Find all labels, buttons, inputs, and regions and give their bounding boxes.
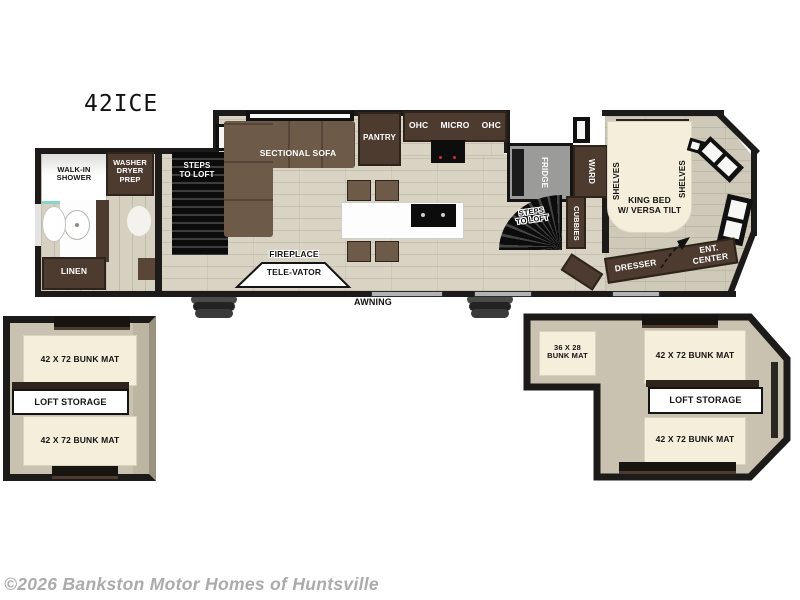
bathroom-step: [138, 258, 155, 280]
window-pane: [577, 121, 585, 139]
loft-right-bunk-small-label: 36 X 28 BUNK MAT: [539, 344, 596, 361]
rear-stairs-label: STEPS TO LOFT: [164, 162, 230, 180]
island-sink: [411, 204, 456, 227]
dresser-label: DRESSER: [614, 258, 657, 274]
burner-dot: [453, 156, 456, 159]
copyright-text: ©2026 Bankston Motor Homes of Huntsville: [4, 574, 379, 595]
wall-segment: [751, 148, 757, 236]
window-pane: [702, 142, 723, 163]
floorplan-title: 42ICE: [84, 91, 158, 117]
loft-right-bottom-opening: [619, 462, 736, 474]
loft-right-bunk-bottom-label: 42 X 72 BUNK MAT: [644, 435, 746, 445]
bathroom-cabinet: [96, 200, 109, 262]
wardrobe-label: WARD: [584, 150, 597, 194]
fridge-label: FRIDGE: [537, 148, 550, 198]
loft-left-bunk-top-label: 42 X 72 BUNK MAT: [23, 355, 137, 365]
loft-left-storage-label: LOFT STORAGE: [12, 397, 129, 407]
bar-stool: [347, 241, 371, 262]
bar-stool: [347, 180, 371, 201]
sink-dot: [441, 213, 445, 217]
loft-right-storage-shadow: [646, 380, 759, 387]
range: [431, 140, 465, 163]
bottom-window: [474, 291, 532, 297]
loft-right-top-opening: [642, 315, 718, 328]
faucet-dot: [75, 223, 79, 227]
sofa-window: [246, 111, 354, 121]
loft-right-storage-label: LOFT STORAGE: [648, 395, 763, 405]
fridge-door-edge: [512, 149, 524, 196]
wall-segment: [35, 291, 161, 297]
cubbies-label: CUBBIES: [570, 200, 582, 246]
window-pane: [723, 220, 742, 239]
loft-left-top-opening: [54, 316, 130, 330]
washer-dryer-prep-label: WASHER DRYER PREP: [107, 159, 153, 184]
bathroom-window: [35, 204, 41, 246]
bathroom-sink: [64, 210, 90, 240]
wall-segment: [155, 148, 162, 297]
bottom-window: [612, 291, 660, 297]
entry-arrow: [653, 228, 699, 274]
window-pane: [728, 200, 747, 220]
awning-label: AWNING: [339, 297, 407, 307]
sectional-sofa-label: SECTIONAL SOFA: [242, 149, 354, 159]
loft-left-bunk-bottom-label: 42 X 72 BUNK MAT: [23, 436, 137, 446]
ohc-right-label: OHC: [482, 121, 501, 131]
bath-rug: [127, 206, 151, 236]
loft-right-window-strip: [771, 362, 778, 438]
sink-dot: [421, 213, 425, 217]
overhead-cabinet-labels: OHC MICRO OHC: [403, 121, 507, 131]
ohc-left-label: OHC: [409, 121, 428, 131]
sofa-chaise: [224, 121, 273, 237]
walk-in-shower-label: WALK-IN SHOWER: [44, 166, 104, 183]
bar-stool: [375, 241, 399, 262]
micro-label: MICRO: [440, 121, 469, 131]
wall-segment: [602, 110, 724, 116]
loft-right-bunk-top-label: 42 X 72 BUNK MAT: [644, 351, 746, 361]
bedroom-side-window: [573, 117, 590, 143]
bar-stool: [375, 180, 399, 201]
floorplan-page: 42ICE WALK-IN SHOWER WASHER DRYER PREP: [0, 0, 800, 600]
burner-dot: [439, 156, 442, 159]
window-pane: [717, 156, 738, 176]
king-bed-label: KING BED W/ VERSA TILT: [607, 196, 692, 215]
wheel: [467, 295, 513, 319]
tire: [471, 309, 509, 318]
fireplace-label: FIREPLACE: [258, 250, 330, 260]
wheel: [191, 295, 237, 319]
loft-left-storage-shadow: [12, 382, 129, 389]
tire: [195, 309, 233, 318]
toilet: [42, 206, 66, 242]
loft-left-bottom-opening: [52, 466, 118, 479]
window-pane: [250, 114, 350, 118]
linen-label: LINEN: [42, 267, 106, 277]
tele-vator-label: TELE-VATOR: [256, 268, 332, 278]
pantry-label: PANTRY: [357, 134, 402, 143]
